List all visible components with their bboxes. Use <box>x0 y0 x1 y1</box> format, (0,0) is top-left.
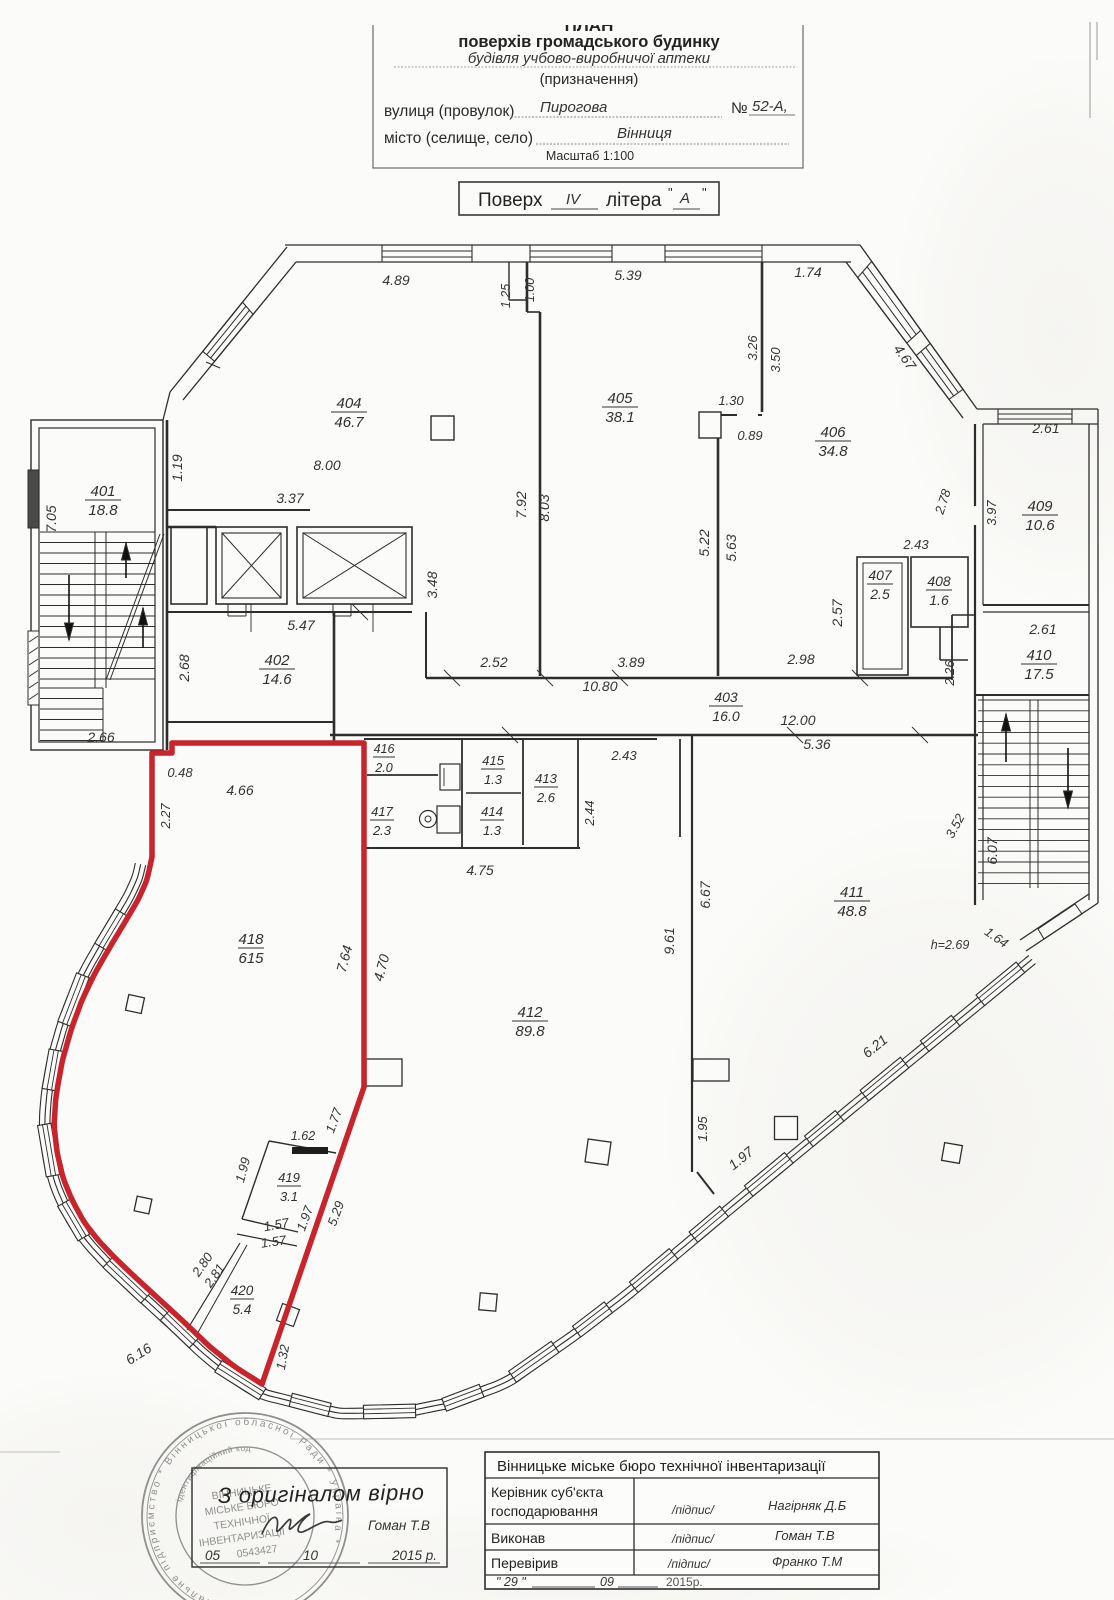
svg-text:1.25: 1.25 <box>499 284 513 308</box>
svg-text:(призначення): (призначення) <box>540 71 639 88</box>
svg-text:Гоман Т.В: Гоман Т.В <box>368 1518 430 1533</box>
svg-text:415: 415 <box>482 753 504 768</box>
svg-text:": " <box>702 185 707 200</box>
svg-text:/підпис/: /підпис/ <box>671 1503 716 1517</box>
svg-text:З оригіналом вірно: З оригіналом вірно <box>218 1479 424 1508</box>
svg-text:10.80: 10.80 <box>582 678 617 694</box>
svg-text:Нагірняк Д.Б: Нагірняк Д.Б <box>768 1498 847 1513</box>
svg-text:2.98: 2.98 <box>786 651 814 667</box>
svg-text:409: 409 <box>1027 498 1053 515</box>
svg-text:5.22: 5.22 <box>696 529 712 556</box>
svg-text:05: 05 <box>205 1548 221 1563</box>
svg-text:09: 09 <box>600 1575 614 1589</box>
svg-text:Масштаб 1:100: Масштаб 1:100 <box>546 149 634 163</box>
svg-text:7.92: 7.92 <box>513 491 529 518</box>
svg-text:2.61: 2.61 <box>1031 420 1059 436</box>
svg-text:4.66: 4.66 <box>226 782 253 798</box>
svg-text:/підпис/: /підпис/ <box>671 1532 716 1546</box>
svg-text:52-А,: 52-А, <box>752 98 788 115</box>
svg-text:8.03: 8.03 <box>536 494 552 521</box>
svg-text:2.5: 2.5 <box>869 586 890 602</box>
svg-text:3.89: 3.89 <box>617 654 644 670</box>
svg-text:0.89: 0.89 <box>737 428 762 443</box>
svg-text:2.43: 2.43 <box>902 537 929 552</box>
svg-text:Франко Т.М: Франко Т.М <box>772 1554 842 1569</box>
svg-text:Перевірив: Перевірив <box>491 1555 558 1571</box>
svg-text:місто (селище, село): місто (селище, село) <box>384 130 533 147</box>
svg-text:10: 10 <box>303 1548 319 1563</box>
svg-text:412: 412 <box>517 1004 543 1021</box>
svg-text:6.67: 6.67 <box>697 880 713 908</box>
svg-text:6.07: 6.07 <box>984 836 1000 864</box>
svg-text:7.05: 7.05 <box>43 505 59 532</box>
svg-text:417: 417 <box>371 804 393 819</box>
svg-text:4.75: 4.75 <box>466 862 493 878</box>
svg-text:17.5: 17.5 <box>1024 666 1054 683</box>
svg-text:10.6: 10.6 <box>1025 517 1055 534</box>
svg-text:2.6: 2.6 <box>536 790 556 805</box>
svg-text:38.1: 38.1 <box>605 409 634 426</box>
svg-text:5.63: 5.63 <box>723 534 739 561</box>
svg-text:2.57: 2.57 <box>829 598 845 627</box>
svg-text:0.48: 0.48 <box>167 765 193 780</box>
svg-text:літера: літера <box>606 190 662 211</box>
svg-text:414: 414 <box>481 804 503 819</box>
svg-text:5.4: 5.4 <box>233 1302 252 1317</box>
svg-text:5.39: 5.39 <box>614 267 641 283</box>
svg-text:48.8: 48.8 <box>837 903 867 920</box>
svg-text:2.61: 2.61 <box>1028 621 1056 637</box>
svg-text:410: 410 <box>1026 647 1052 664</box>
svg-text:12.00: 12.00 <box>780 712 815 728</box>
svg-text:419: 419 <box>278 1170 300 1185</box>
svg-text:Гоман Т.В: Гоман Т.В <box>775 1528 835 1543</box>
svg-text:404: 404 <box>336 395 361 412</box>
svg-text:Пирогова: Пирогова <box>540 99 607 116</box>
svg-text:господарювання: господарювання <box>491 1503 598 1519</box>
svg-text:Керівник суб'єкта: Керівник суб'єкта <box>491 1484 603 1500</box>
svg-text:Поверх: Поверх <box>478 190 543 211</box>
svg-text:14.6: 14.6 <box>262 671 292 688</box>
svg-text:16.0: 16.0 <box>712 708 739 724</box>
svg-text:416: 416 <box>374 742 395 756</box>
svg-text:1.3: 1.3 <box>484 772 503 787</box>
svg-text:h=2.69: h=2.69 <box>931 938 970 952</box>
svg-text:405: 405 <box>607 390 633 407</box>
svg-text:2.0: 2.0 <box>374 761 392 775</box>
svg-text:8.00: 8.00 <box>313 457 340 473</box>
svg-text:3.37: 3.37 <box>276 490 304 506</box>
svg-text:вулиця (провулок): вулиця (провулок) <box>384 103 514 120</box>
svg-text:": " <box>668 185 673 200</box>
svg-text:407: 407 <box>868 567 893 583</box>
svg-text:Вінниця: Вінниця <box>617 125 672 142</box>
svg-text:413: 413 <box>535 771 557 786</box>
svg-text:402: 402 <box>264 652 290 669</box>
svg-text:89.8: 89.8 <box>515 1023 545 1040</box>
svg-text:3.50: 3.50 <box>768 347 783 373</box>
svg-text:1.62: 1.62 <box>291 1129 315 1143</box>
svg-text:2.52: 2.52 <box>479 654 507 670</box>
svg-text:А: А <box>679 190 690 207</box>
svg-text:46.7: 46.7 <box>334 414 364 431</box>
svg-text:1.00: 1.00 <box>523 278 537 302</box>
svg-text:2.66: 2.66 <box>86 729 114 745</box>
svg-text:5.47: 5.47 <box>287 617 315 633</box>
svg-text:2.68: 2.68 <box>176 654 192 682</box>
svg-text:2015р.: 2015р. <box>666 1575 703 1589</box>
svg-text:№: № <box>731 100 748 117</box>
svg-text:1.30: 1.30 <box>718 393 744 408</box>
svg-text:1.6: 1.6 <box>929 592 949 608</box>
svg-text:4.89: 4.89 <box>382 272 409 288</box>
svg-text:418: 418 <box>238 931 264 948</box>
svg-text:поверхів громадського будинку: поверхів громадського будинку <box>458 33 720 51</box>
svg-text:9.61: 9.61 <box>661 927 677 954</box>
svg-text:3.48: 3.48 <box>424 571 440 598</box>
svg-text:2.44: 2.44 <box>582 800 597 826</box>
svg-text:615: 615 <box>238 950 264 967</box>
svg-text:403: 403 <box>714 689 738 705</box>
svg-text:будівля учбово-виробничої апте: будівля учбово-виробничої аптеки <box>468 50 711 67</box>
svg-text:1.19: 1.19 <box>169 454 185 481</box>
svg-text:Вінницьке міське бюро технічно: Вінницьке міське бюро технічної інвентар… <box>497 1458 826 1475</box>
svg-text:/підпис/: /підпис/ <box>667 1557 712 1571</box>
svg-text:2.27: 2.27 <box>158 803 173 830</box>
svg-text:Виконав: Виконав <box>491 1530 545 1546</box>
svg-text:IV: IV <box>566 191 582 208</box>
svg-text:5.36: 5.36 <box>803 736 830 752</box>
svg-text:18.8: 18.8 <box>88 502 118 519</box>
svg-text:1.3: 1.3 <box>483 823 502 838</box>
svg-text:1.74: 1.74 <box>794 264 821 280</box>
svg-text:3.1: 3.1 <box>280 1189 298 1204</box>
svg-text:420: 420 <box>231 1283 254 1298</box>
svg-text:3.26: 3.26 <box>745 335 760 361</box>
svg-text:401: 401 <box>90 483 115 500</box>
svg-text:2.43: 2.43 <box>610 748 637 763</box>
svg-text:2.26: 2.26 <box>942 660 957 687</box>
svg-text:1.95: 1.95 <box>695 1116 710 1142</box>
svg-text:408: 408 <box>927 573 951 589</box>
svg-text:2015 р.: 2015 р. <box>391 1548 437 1563</box>
svg-text:3.97: 3.97 <box>984 500 999 526</box>
svg-text:411: 411 <box>840 884 864 901</box>
svg-text:406: 406 <box>820 424 846 441</box>
svg-text:" 29 ": " 29 " <box>496 1575 526 1589</box>
svg-text:34.8: 34.8 <box>818 443 848 460</box>
svg-text:2.3: 2.3 <box>372 823 392 838</box>
